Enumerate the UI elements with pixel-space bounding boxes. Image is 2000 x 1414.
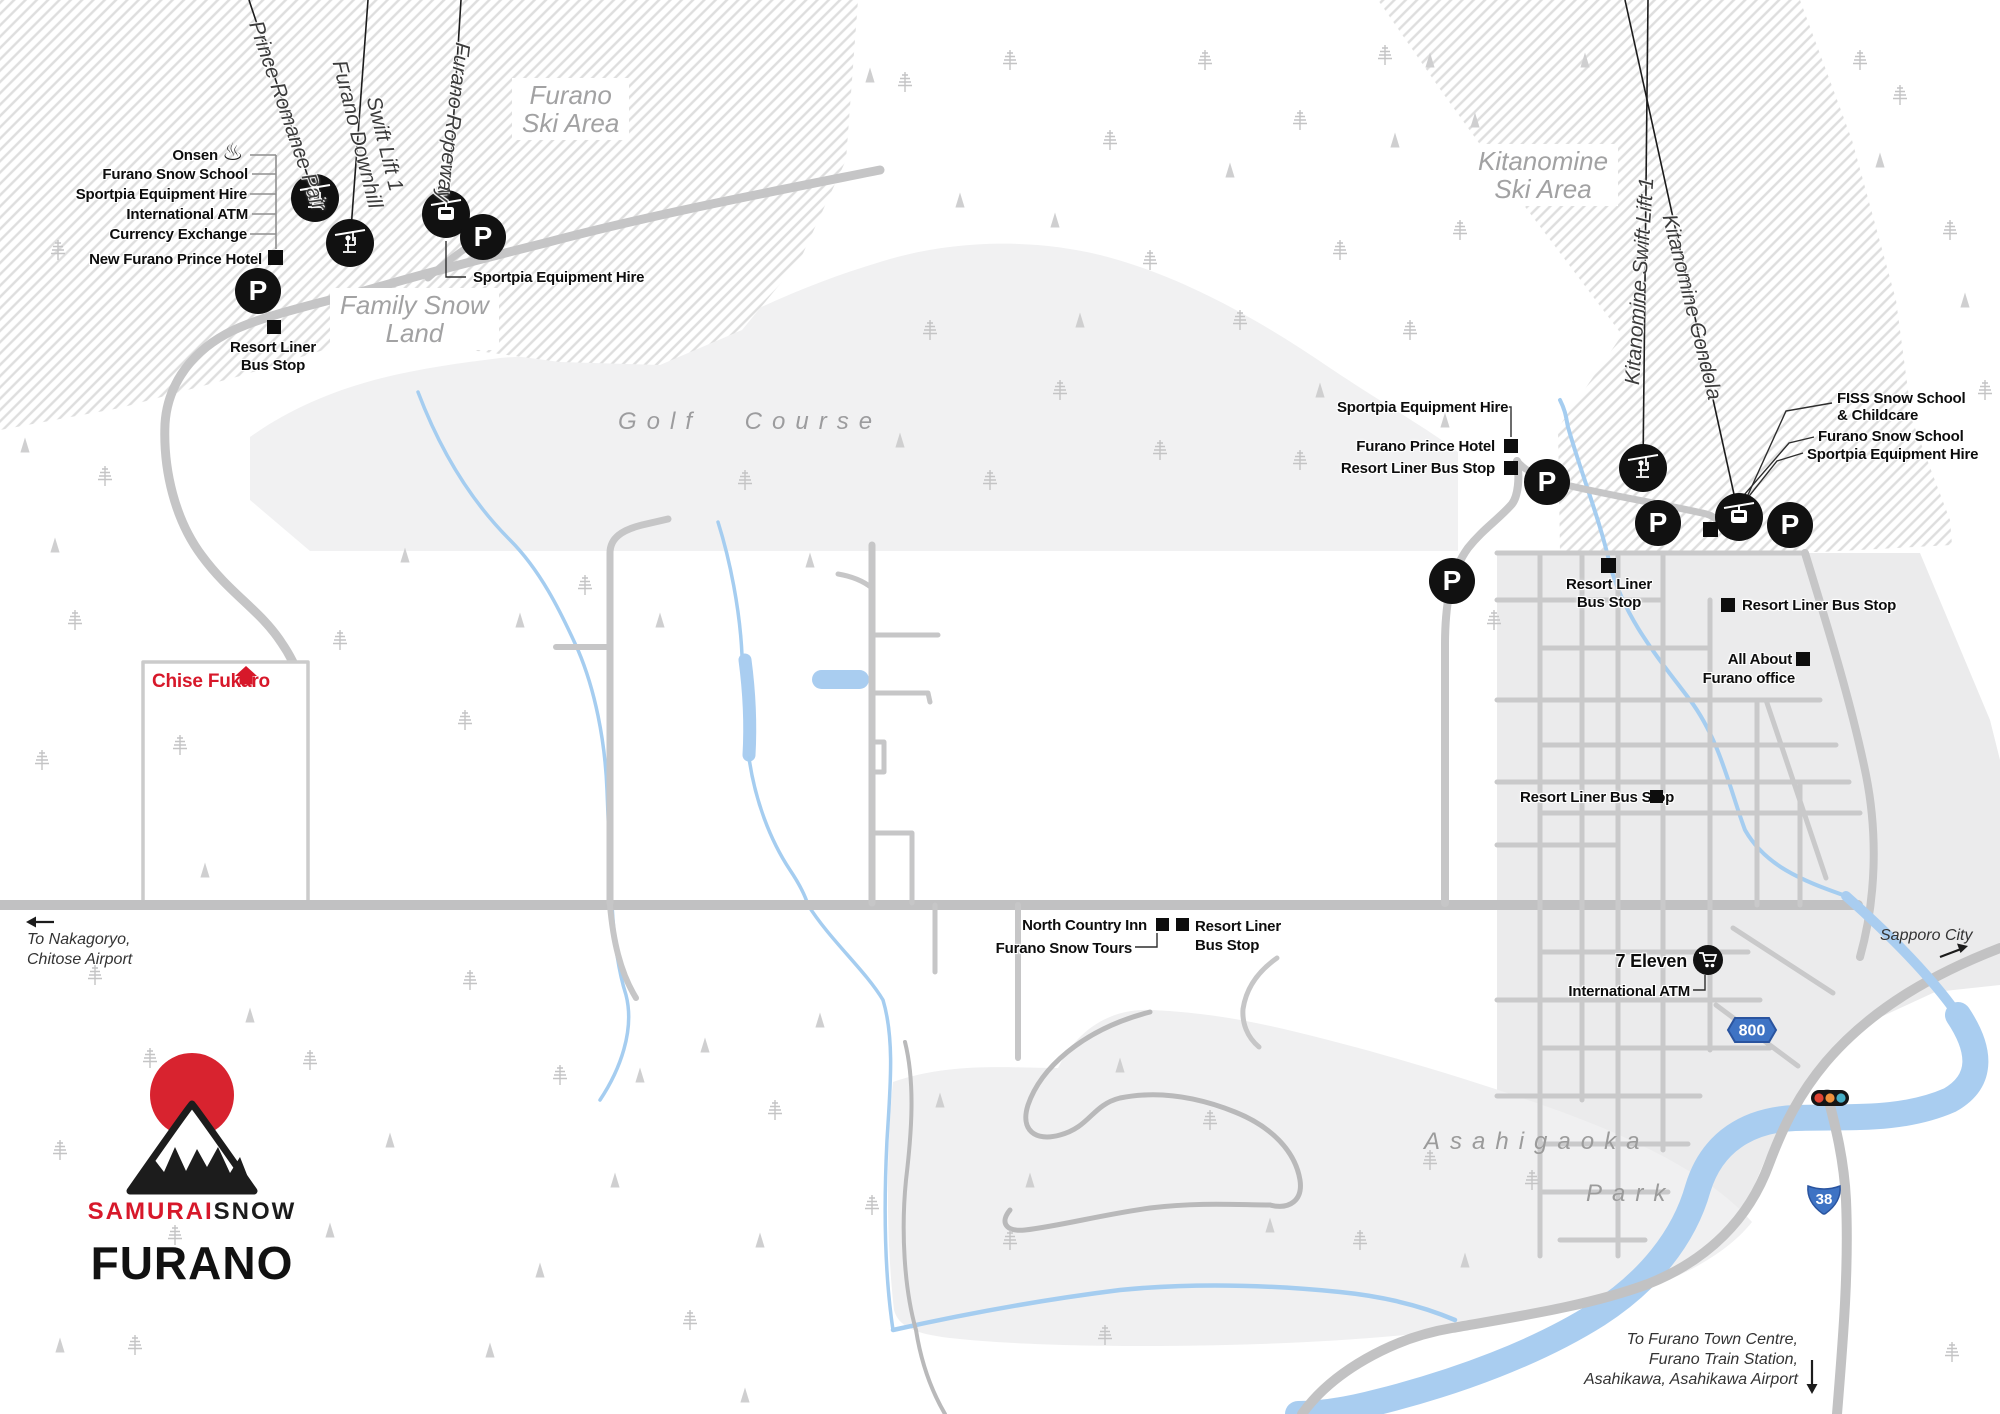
direction-nakagoryo: To Nakagoryo,Chitose Airport	[27, 930, 132, 970]
chairlift-icon	[1619, 444, 1667, 492]
traffic-light-icon	[1811, 1090, 1849, 1106]
poi-label-international-atm-town: International ATM	[1560, 983, 1690, 1000]
poi-label-sportpia-hire: Sportpia Equipment Hire	[40, 186, 247, 203]
asahigaoka-label: Asahigaoka	[1424, 1128, 1649, 1156]
route-38-road	[1827, 1094, 1847, 1414]
furano-ski-area-label: FuranoSki Area	[512, 78, 629, 140]
poi-label-resort-liner-town-nw: Resort LinerBus Stop	[1559, 576, 1659, 612]
parking-marker: P	[235, 268, 281, 314]
parking-marker: P	[1524, 459, 1570, 505]
poi-square-all-about-furano	[1796, 652, 1810, 666]
poi-label-seven-eleven: 7 Eleven	[1580, 951, 1687, 972]
poi-label-sportpia-ropeway: Sportpia Equipment Hire	[473, 269, 644, 286]
poi-label-furano-snow-school-right: Furano Snow School	[1818, 428, 1964, 445]
golf-course-label: Golf Course	[618, 408, 882, 436]
poi-label-international-atm: International ATM	[80, 206, 248, 223]
svg-text:38: 38	[1816, 1191, 1833, 1208]
chise-fukaro-parcel	[143, 662, 308, 902]
logo-samurai: SAMURAI	[88, 1198, 214, 1225]
kitanomine-ski-area-label: KitanomineSki Area	[1468, 144, 1618, 206]
park-label: Park	[1586, 1180, 1675, 1208]
poi-square-bus-stop	[1601, 558, 1616, 573]
logo-furano: FURANO	[80, 1236, 304, 1290]
poi-label-sportpia-gondola: Sportpia Equipment Hire	[1807, 446, 1978, 463]
poi-square-bus-stop	[1176, 918, 1189, 931]
poi-label-onsen: Onsen	[100, 147, 218, 164]
seven-eleven-store-icon	[1693, 945, 1723, 975]
family-snow-land-label: Family SnowLand	[330, 288, 499, 350]
furano-resort-map: 800 38 FuranoSki Area KitanomineSki Area…	[0, 0, 2000, 1414]
poi-label-resort-liner-prince: Resort Liner Bus Stop	[1330, 460, 1495, 477]
poi-square-bus-stop	[1650, 790, 1663, 803]
parking-marker: P	[460, 214, 506, 260]
poi-label-north-country-inn: North Country Inn	[1000, 917, 1147, 934]
poi-square-gondola-base	[1703, 522, 1718, 537]
poi-label-all-about: All About	[1690, 651, 1792, 668]
poi-square-bus-stop	[1504, 461, 1518, 475]
poi-label-furano-snow-school: Furano Snow School	[60, 166, 248, 183]
poi-label-resort-liner-town-mid: Resort Liner Bus Stop	[1520, 789, 1645, 806]
poi-label-chise-fukaro: Chise Fukaro	[152, 671, 270, 693]
poi-label-currency-exchange: Currency Exchange	[60, 226, 247, 243]
poi-label-new-furano-prince-hotel: New Furano Prince Hotel	[40, 251, 262, 268]
poi-label-furano-office: Furano office	[1660, 670, 1795, 687]
poi-label-sportpia-kitanomine: Sportpia Equipment Hire	[1337, 399, 1508, 416]
direction-sapporo-city: Sapporo City	[1880, 926, 1973, 946]
poi-square-north-country-inn	[1156, 918, 1169, 931]
samurai-snow-logo-mark	[130, 1053, 254, 1191]
parking-marker: P	[1429, 558, 1475, 604]
poi-square-furano-prince-hotel	[1504, 439, 1518, 453]
poi-square-bus-stop	[1721, 598, 1735, 612]
svg-text:800: 800	[1739, 1023, 1766, 1040]
logo-snow: SNOW	[214, 1198, 297, 1225]
chairlift-icon	[326, 219, 374, 267]
poi-label-fiss-snow-school: FISS Snow School& Childcare	[1837, 390, 1965, 424]
poi-label-resort-liner-town-ne: Resort Liner Bus Stop	[1742, 597, 1896, 614]
route-38-shield: 38	[1808, 1186, 1840, 1214]
onsen-icon: ♨	[222, 140, 244, 164]
poi-square-new-furano-prince-hotel	[268, 250, 283, 265]
poi-square-bus-stop	[267, 320, 281, 334]
poi-label-furano-prince-hotel: Furano Prince Hotel	[1350, 438, 1495, 455]
poi-label-furano-snow-tours: Furano Snow Tours	[990, 940, 1132, 957]
poi-label-resort-liner-nci: Resort LinerBus Stop	[1195, 917, 1281, 955]
gondola-icon	[1715, 493, 1763, 541]
route-800-shield: 800	[1728, 1018, 1776, 1042]
parking-marker: P	[1767, 502, 1813, 548]
direction-furano-town-centre: To Furano Town Centre,Furano Train Stati…	[1570, 1330, 1798, 1390]
logo-samurai-snow: SAMURAISNOW	[80, 1198, 304, 1226]
poi-label-resort-liner-west: Resort LinerBus Stop	[203, 339, 343, 375]
parking-marker: P	[1635, 500, 1681, 546]
